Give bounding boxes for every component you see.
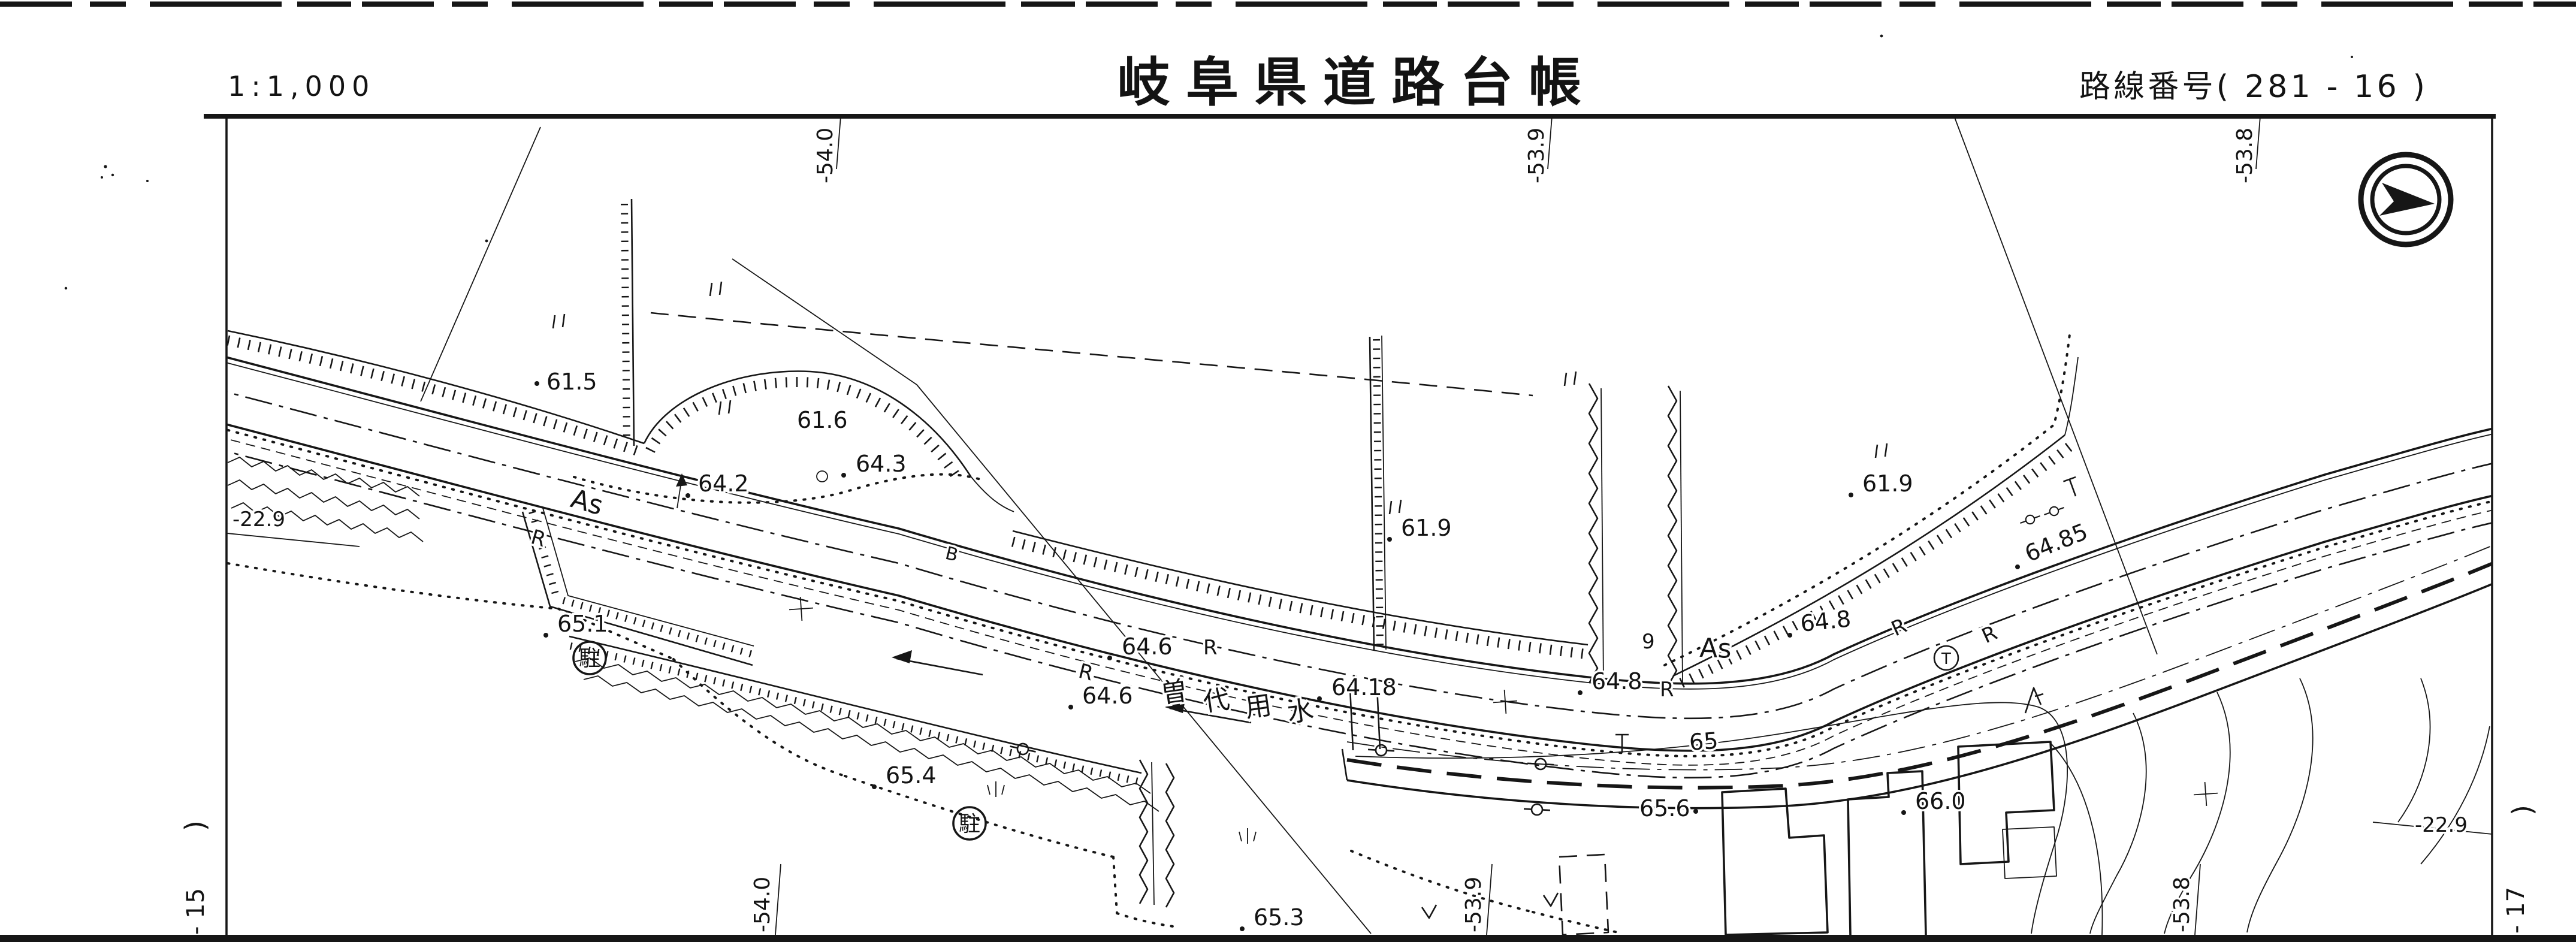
paddy-field-symbols (553, 282, 1887, 514)
pavement-label-as: As (1699, 633, 1732, 665)
lower-road (1342, 542, 2502, 808)
spot-elevation: 65.6 (1639, 795, 1690, 822)
svg-text:駐: 駐 (579, 647, 600, 671)
curve-label-r: R (1076, 659, 1096, 686)
sheet-join-left-paren: ) (179, 820, 212, 831)
spot-elevation: 65.3 (1254, 904, 1304, 931)
parking-symbol: 駐 (573, 642, 606, 674)
scanned-map-sheet: 1:1,000 岐阜県道路台帳 路線番号( 281 - 16 ) ) - 15 … (0, 0, 2576, 942)
road-ledger-map: 1:1,000 岐阜県道路台帳 路線番号( 281 - 16 ) ) - 15 … (0, 0, 2576, 942)
parking-symbol: 駐 (953, 807, 986, 840)
spot-elevation: 61.9 (1401, 515, 1452, 541)
sheet-join-right-paren: ( (2508, 805, 2540, 816)
scan-bottom-edge (0, 935, 2576, 942)
svg-text:代: 代 (1201, 684, 1232, 718)
grid-label-left: -22.9 (232, 508, 285, 532)
grid-label-top-3: -53.8 (2233, 128, 2257, 183)
map-scale: 1:1,000 (228, 70, 375, 102)
spot-elevation: 66.0 (1915, 788, 1966, 814)
north-arrow-icon (2361, 155, 2451, 244)
spot-elevation: 61.9 (1862, 470, 1913, 497)
spot-elevation: 64.85 (2021, 518, 2091, 567)
spot-elevation: 64.2 (698, 470, 749, 497)
grid-label-bottom-3: -53.8 (2170, 877, 2194, 932)
sheet-join-right: ( - 17 (2502, 805, 2540, 934)
spot-elevation: 64.18 (1331, 674, 1397, 701)
spot-symbol-ring (817, 471, 828, 482)
spot-elevation: 65.1 (557, 611, 608, 637)
tree-symbol (2025, 688, 2043, 713)
spot-elevation: 64.6 (1082, 683, 1133, 709)
station-label-9: 9 (1642, 630, 1655, 654)
survey-arrow (676, 473, 687, 508)
spot-elevation: 64.8 (1799, 605, 1852, 637)
spot-elevation: 61.6 (797, 407, 848, 433)
spot-elevation: 64.3 (856, 451, 907, 477)
sheet-join-left-number: - 15 (182, 888, 210, 935)
sheet-title: 岐阜県道路台帳 (1118, 52, 1597, 113)
sheet-join-left: ) - 15 (179, 820, 212, 935)
curve-label-r: R (1660, 678, 1674, 702)
spot-elevation: 64.6 (1122, 633, 1173, 660)
svg-text:T: T (1941, 650, 1951, 668)
grass-tuft-symbols (987, 781, 1256, 844)
spot-elevation: 61.5 (546, 369, 597, 395)
road-top-edge-inner (201, 356, 2502, 689)
grid-label-top-1: -54.0 (813, 128, 838, 183)
road-centerline (201, 385, 2502, 718)
sheet-join-right-number: - 17 (2502, 887, 2530, 934)
curve-label-r: R (1978, 621, 2001, 648)
coordinate-grid-ticks (227, 116, 2492, 935)
route-number-label: 路線番号( 281 - 16 ) (2079, 69, 2428, 105)
grid-label-right: -22.9 (2415, 813, 2468, 837)
circled-t-symbol: T (1934, 646, 1958, 670)
grid-label-top-2: -53.9 (1524, 128, 1549, 183)
curve-label-r: R (529, 525, 549, 552)
planned-building-outline (1559, 855, 1608, 935)
grid-label-bottom-2: -53.9 (1461, 877, 1486, 932)
grid-label-bottom-1: -54.0 (750, 877, 775, 932)
svg-text:曽: 曽 (1159, 675, 1190, 709)
svg-text:水: 水 (1285, 695, 1316, 729)
spot-elevation: 65.4 (886, 762, 937, 789)
canal-flow-arrows (892, 650, 1251, 723)
contour-label: 65 (1689, 727, 1719, 756)
boundary-lines (228, 117, 2157, 934)
spot-elevation: 64.8 (1591, 668, 1642, 695)
spot-elevation-dots (534, 381, 2020, 931)
svg-text:駐: 駐 (959, 812, 980, 837)
curve-label-r: R (1203, 636, 1218, 660)
svg-text:用: 用 (1243, 690, 1274, 724)
point-label-b: B (943, 543, 960, 566)
grid-coordinate-labels: -54.0 -53.9 -53.8 -54.0 -53.9 -53.8 -22.… (232, 128, 2468, 932)
buildings (1559, 742, 2102, 935)
